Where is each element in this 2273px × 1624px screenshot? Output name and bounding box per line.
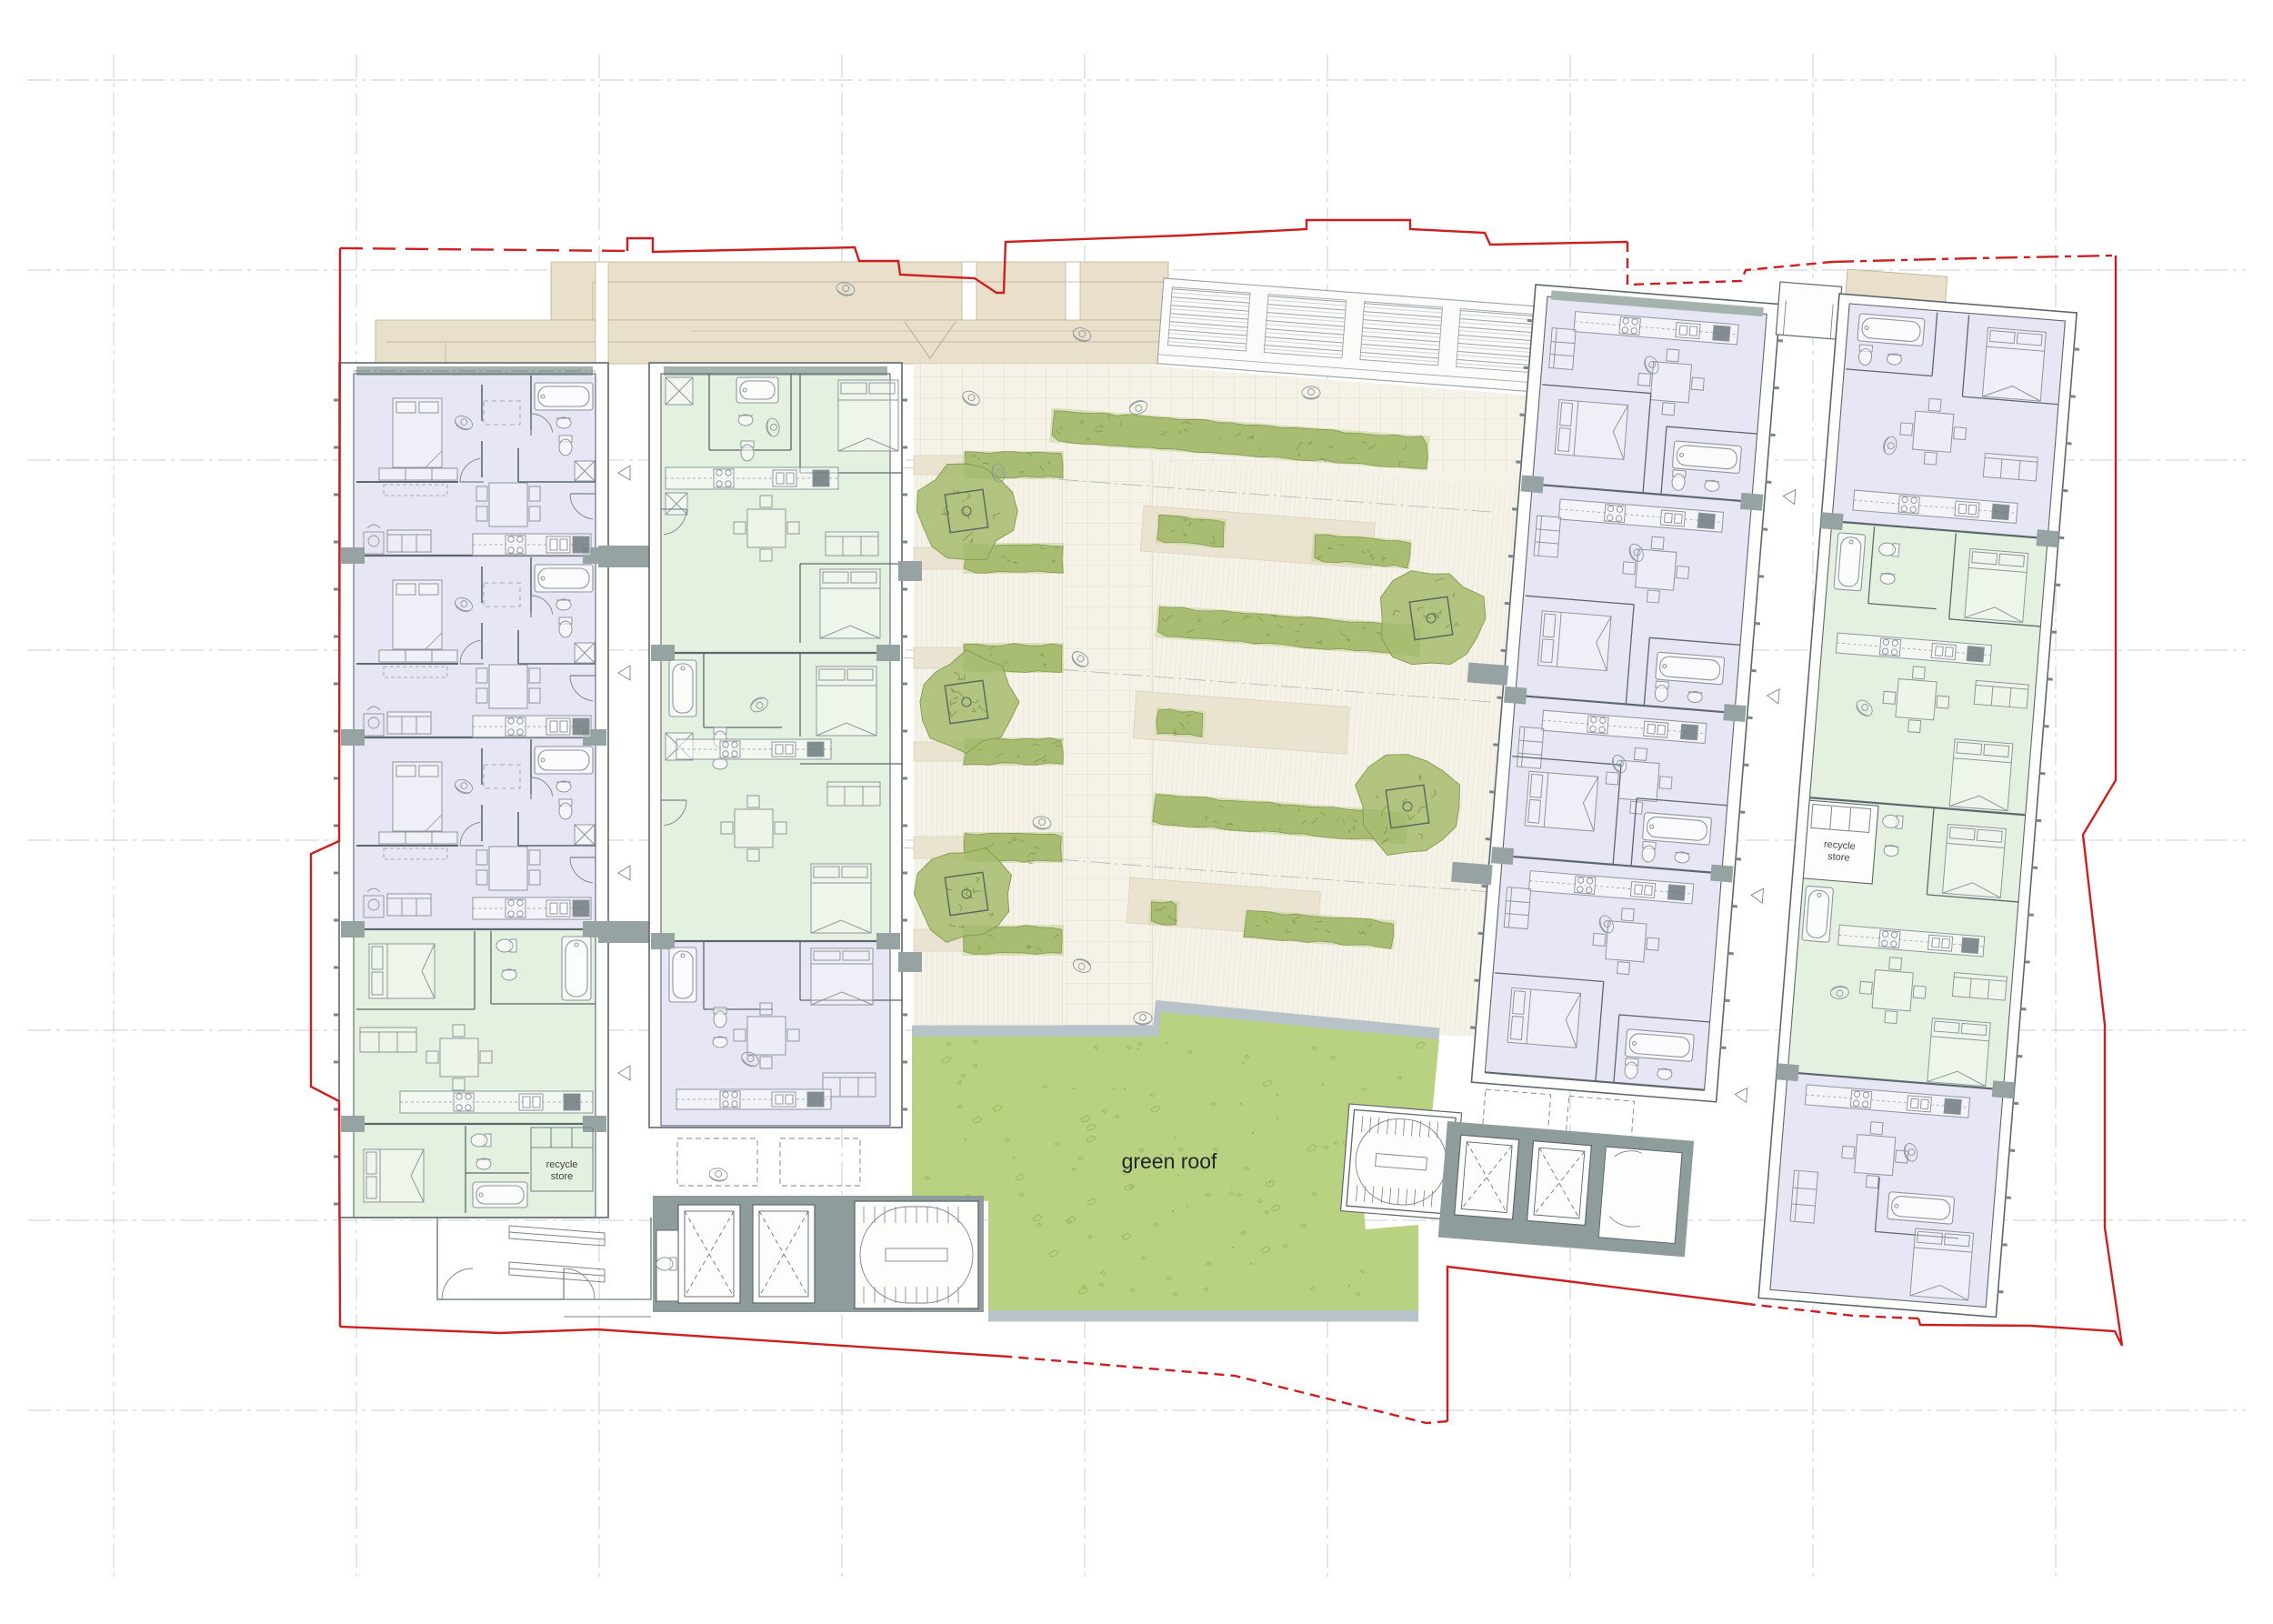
svg-text:green roof: green roof <box>1122 1149 1217 1173</box>
svg-text:store: store <box>1827 851 1850 864</box>
svg-text:store: store <box>551 1171 573 1182</box>
svg-text:recycle: recycle <box>546 1159 578 1170</box>
